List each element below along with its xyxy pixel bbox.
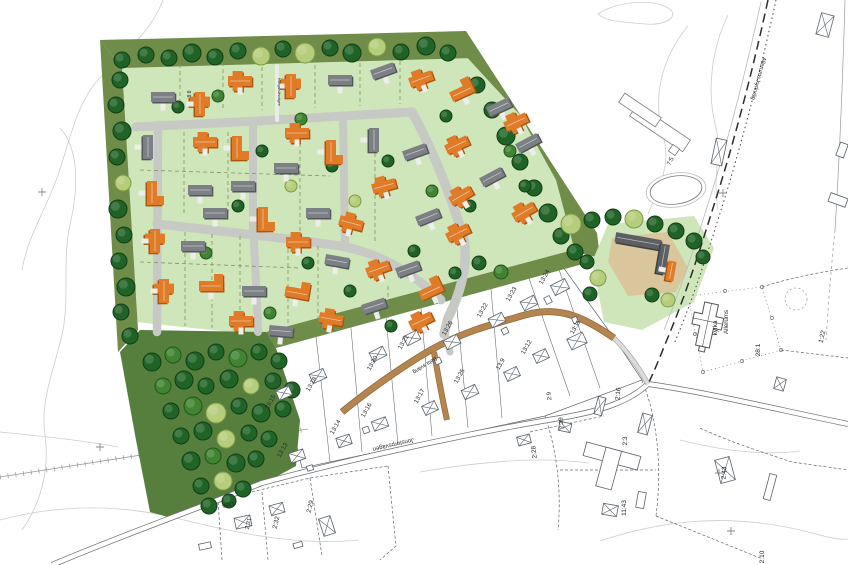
label-8-8: 8:8 bbox=[187, 90, 193, 97]
tree bbox=[417, 37, 435, 55]
label-2-10: 2:10 bbox=[759, 550, 766, 563]
parcel-dashed bbox=[380, 466, 396, 560]
tree bbox=[385, 320, 397, 332]
tree bbox=[494, 265, 508, 279]
tree bbox=[111, 253, 127, 269]
label-allerums: Allerums bbox=[723, 310, 730, 334]
tree bbox=[175, 371, 193, 389]
label-2-29: 2:29 bbox=[306, 499, 316, 513]
tree bbox=[252, 47, 270, 65]
tree bbox=[661, 293, 675, 307]
label-11-43: 11:43 bbox=[621, 500, 628, 516]
tree bbox=[217, 430, 235, 448]
contour bbox=[711, 15, 728, 210]
label-2-28: 2:28 bbox=[530, 445, 539, 459]
tree bbox=[198, 378, 214, 394]
tree bbox=[143, 353, 161, 371]
existing-building bbox=[711, 138, 727, 166]
existing-building bbox=[836, 142, 848, 158]
existing-building bbox=[828, 193, 848, 208]
tree bbox=[220, 370, 238, 388]
tree bbox=[227, 454, 245, 472]
existing-building bbox=[594, 396, 606, 415]
existing-building bbox=[501, 327, 509, 335]
map-canvas: 8:8Kungshultsvägen7:5Allerumskyrka28:11:… bbox=[0, 0, 848, 565]
site-plan-map: 8:8Kungshultsvägen7:5Allerumskyrka28:11:… bbox=[0, 0, 848, 565]
label-13-25: 13:25 bbox=[453, 367, 467, 384]
tree bbox=[232, 200, 244, 212]
contour bbox=[600, 521, 848, 541]
parcel-dashed bbox=[262, 492, 268, 560]
tree bbox=[205, 448, 221, 464]
tree bbox=[567, 244, 583, 260]
tree bbox=[161, 50, 177, 66]
tree bbox=[426, 185, 438, 197]
tree bbox=[122, 328, 138, 344]
label-1-22: 1:22 bbox=[818, 329, 828, 343]
label-2-3: 2:3 bbox=[622, 436, 629, 445]
survey-cross bbox=[719, 189, 727, 197]
tree bbox=[229, 349, 247, 367]
existing-building bbox=[319, 516, 336, 537]
label-13-14: 13:14 bbox=[329, 418, 343, 435]
tree bbox=[243, 378, 259, 394]
church bbox=[687, 300, 727, 354]
contour bbox=[680, 440, 800, 453]
tree bbox=[186, 352, 204, 370]
parcel-dashed bbox=[781, 350, 848, 358]
tree bbox=[645, 288, 659, 302]
existing-building bbox=[422, 401, 439, 416]
parcel-dashed bbox=[762, 268, 848, 287]
parcel-dashed bbox=[310, 478, 322, 556]
existing-building bbox=[293, 541, 303, 548]
tree bbox=[183, 44, 201, 62]
label-2-9: 2:9 bbox=[547, 391, 554, 400]
tree bbox=[207, 49, 223, 65]
tree bbox=[212, 90, 224, 102]
tree bbox=[163, 403, 179, 419]
tree bbox=[449, 267, 461, 279]
label-kyrka: kyrka bbox=[712, 320, 719, 335]
tree bbox=[109, 149, 125, 165]
tree bbox=[393, 44, 409, 60]
tree bbox=[194, 422, 212, 440]
existing-building bbox=[638, 413, 653, 435]
tree bbox=[519, 180, 531, 192]
tree bbox=[344, 285, 356, 297]
tree bbox=[590, 270, 606, 286]
survey-cross bbox=[38, 188, 46, 196]
existing-building bbox=[533, 349, 550, 364]
tree bbox=[271, 353, 287, 369]
tree bbox=[382, 155, 394, 167]
church-annex bbox=[698, 346, 705, 352]
tree bbox=[113, 304, 129, 320]
label-kungshultsv-gen: Kungshultsvägen bbox=[277, 78, 281, 106]
tree bbox=[138, 47, 154, 63]
tree bbox=[116, 227, 132, 243]
tree bbox=[208, 344, 224, 360]
existing-building bbox=[362, 426, 370, 434]
tree bbox=[472, 256, 486, 270]
lot-line bbox=[490, 277, 502, 418]
lot-line bbox=[350, 317, 362, 452]
label-2-39: 2:39 bbox=[558, 416, 565, 429]
existing-building bbox=[774, 377, 787, 391]
label-2-32: 2:32 bbox=[272, 515, 282, 529]
existing-building bbox=[763, 474, 776, 501]
school-buildings bbox=[619, 93, 708, 211]
contour bbox=[598, 2, 673, 24]
tree bbox=[275, 401, 291, 417]
tree bbox=[231, 398, 247, 414]
label-13-16: 13:16 bbox=[360, 401, 374, 418]
tree bbox=[248, 451, 264, 467]
label-13-12: 13:12 bbox=[520, 338, 534, 355]
street bbox=[253, 226, 258, 332]
tree bbox=[113, 122, 131, 140]
existing-building bbox=[602, 503, 619, 516]
tree bbox=[295, 43, 315, 63]
existing-building bbox=[199, 542, 212, 550]
tree bbox=[285, 180, 297, 192]
tree bbox=[182, 452, 200, 470]
tree bbox=[696, 250, 710, 264]
tree bbox=[302, 257, 314, 269]
tree bbox=[440, 45, 456, 61]
tree bbox=[686, 233, 702, 249]
label-7-5: 7:5 bbox=[667, 156, 676, 167]
tree bbox=[193, 478, 209, 494]
existing-building bbox=[520, 295, 538, 311]
tree bbox=[343, 44, 361, 62]
tree bbox=[117, 278, 135, 296]
existing-building bbox=[371, 417, 389, 432]
existing-building bbox=[636, 491, 647, 508]
tree bbox=[265, 373, 281, 389]
tree bbox=[235, 481, 251, 497]
tree bbox=[275, 41, 291, 57]
parcel-dashed bbox=[656, 516, 760, 558]
survey-cross bbox=[727, 527, 735, 535]
tree bbox=[368, 38, 386, 56]
large-farm-building bbox=[576, 442, 640, 495]
existing-building bbox=[517, 434, 532, 446]
tree bbox=[155, 378, 171, 394]
existing-building bbox=[461, 384, 479, 399]
label-13-22: 13:22 bbox=[476, 301, 490, 318]
tree bbox=[115, 175, 131, 191]
tree bbox=[583, 287, 597, 301]
tree bbox=[504, 145, 516, 157]
tree bbox=[584, 212, 600, 228]
tree bbox=[173, 428, 189, 444]
tree bbox=[625, 210, 643, 228]
tree bbox=[108, 97, 124, 113]
boundary-circle bbox=[785, 288, 807, 310]
tree bbox=[256, 145, 268, 157]
existing-building bbox=[269, 502, 285, 515]
tree bbox=[184, 397, 202, 415]
label-allerums-kyrkv-g: Allerums kyrkväg bbox=[749, 56, 766, 100]
tree bbox=[264, 307, 276, 319]
label-13-17: 13:17 bbox=[413, 387, 427, 404]
tree bbox=[408, 245, 420, 257]
tree bbox=[114, 52, 130, 68]
tree bbox=[109, 200, 127, 218]
label-13-9: 13:9 bbox=[495, 357, 507, 371]
tree bbox=[561, 214, 581, 234]
tree bbox=[647, 216, 663, 232]
tree bbox=[251, 344, 267, 360]
tree bbox=[605, 209, 621, 225]
tree bbox=[580, 255, 594, 269]
existing-building bbox=[504, 367, 521, 382]
label-2-16: 2:16 bbox=[614, 387, 622, 401]
tree bbox=[512, 154, 528, 170]
tree bbox=[668, 223, 684, 239]
lot-line bbox=[315, 327, 330, 462]
tree bbox=[440, 110, 452, 122]
tree bbox=[322, 40, 338, 56]
existing-building bbox=[550, 278, 569, 295]
tree bbox=[214, 472, 232, 490]
tree bbox=[112, 72, 128, 88]
label-13-23: 13:23 bbox=[505, 285, 519, 302]
tree bbox=[539, 204, 557, 222]
existing-building bbox=[544, 296, 553, 305]
tree bbox=[206, 403, 226, 423]
tree bbox=[165, 347, 181, 363]
existing-building bbox=[816, 13, 834, 38]
existing-building bbox=[336, 434, 352, 448]
tree bbox=[230, 43, 246, 59]
tree bbox=[241, 425, 257, 441]
label-28-1: 28:1 bbox=[755, 343, 762, 356]
existing-building bbox=[567, 332, 587, 350]
tree bbox=[261, 431, 277, 447]
fence-line-right-dashed bbox=[826, 230, 835, 340]
tree bbox=[201, 498, 217, 514]
tree bbox=[349, 195, 361, 207]
parcel-dashed bbox=[545, 416, 559, 530]
